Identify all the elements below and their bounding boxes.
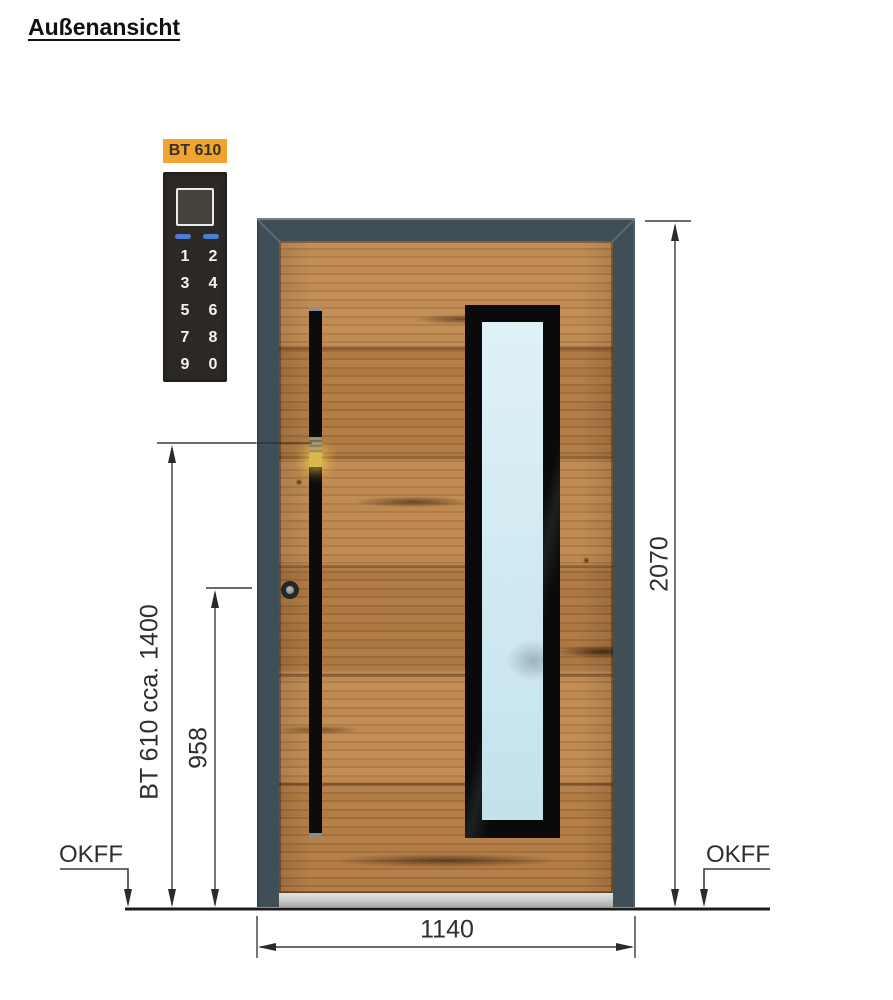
- keypad-key-8: 8: [199, 324, 227, 351]
- door-knob-center: [286, 586, 294, 594]
- keypad-model-badge: BT 610: [163, 139, 227, 163]
- keypad-key-3: 3: [171, 270, 199, 297]
- dim-1400-arrow-down: [168, 889, 176, 907]
- dim-1140-arrow-left: [258, 943, 276, 951]
- okff-left-arrow: [124, 889, 132, 907]
- dim-1400-arrow-up: [168, 445, 176, 463]
- keypad-device: 1 2 3 4 5 6 7 8 9 0: [163, 172, 227, 382]
- okff-right-arrow: [700, 889, 708, 907]
- keypad-key-6: 6: [199, 297, 227, 324]
- dim-label-keypad-height-1400: BT 610 cca. 1400: [136, 604, 165, 800]
- dim-label-width-1140: 1140: [420, 916, 474, 945]
- dim-958-arrow-up: [211, 590, 219, 608]
- keypad-key-grid: 1 2 3 4 5 6 7 8 9 0: [163, 243, 227, 378]
- dim-label-height-2070: 2070: [646, 536, 675, 592]
- dim-1140-arrow-right: [616, 943, 634, 951]
- okff-left-leader: [60, 869, 128, 891]
- keypad-key-1: 1: [171, 243, 199, 270]
- handle-keypad-glow: [309, 453, 322, 467]
- keypad-key-5: 5: [171, 297, 199, 324]
- door-knob: [281, 581, 299, 599]
- dim-label-lock-height-958: 958: [185, 727, 214, 769]
- dim-958-arrow-down: [211, 889, 219, 907]
- keypad-led-right: [203, 234, 219, 239]
- page-title: Außenansicht: [28, 14, 180, 41]
- handle-keypad-reader: [309, 437, 322, 453]
- handle-cap-bottom: [309, 833, 322, 837]
- dim-2070-arrow-up: [671, 223, 679, 241]
- keypad-key-9: 9: [171, 351, 199, 378]
- door-leaf-wood: [279, 241, 613, 893]
- keypad-key-0: 0: [199, 351, 227, 378]
- dim-2070-arrow-down: [671, 889, 679, 907]
- keypad-key-7: 7: [171, 324, 199, 351]
- glass-pane: [482, 322, 543, 820]
- handle-cap-top: [309, 307, 322, 311]
- drawing-canvas: Außenansicht BT 610 1 2 3 4 5 6 7 8 9 0: [0, 0, 893, 1000]
- keypad-display: [176, 188, 214, 226]
- okff-label-right: OKFF: [706, 841, 770, 869]
- okff-label-left: OKFF: [59, 841, 123, 869]
- okff-right-leader: [704, 869, 770, 891]
- keypad-led-row: [163, 234, 227, 239]
- keypad-key-2: 2: [199, 243, 227, 270]
- door-handle-bar: [309, 307, 322, 837]
- door-threshold: [279, 893, 613, 907]
- keypad-led-left: [175, 234, 191, 239]
- keypad-key-4: 4: [199, 270, 227, 297]
